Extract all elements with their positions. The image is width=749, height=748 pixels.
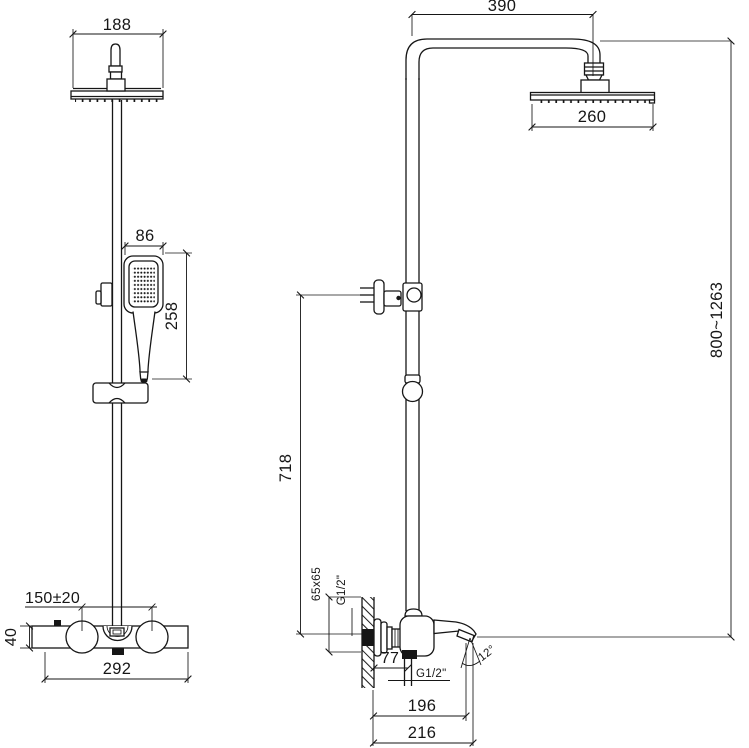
- dim-label-86: 86: [136, 227, 155, 245]
- dim-label-292: 292: [103, 660, 131, 678]
- slider-clamp-front: [93, 383, 148, 403]
- overhead-shower-side: [531, 93, 655, 104]
- slider-knob-side: [403, 375, 423, 402]
- hand-shower-front: [124, 256, 163, 383]
- dim-label-40: 40: [3, 628, 20, 646]
- riser-pole-front: [113, 100, 122, 627]
- riser-pipe-side: [406, 78, 419, 611]
- shower-arm-side: [406, 39, 600, 80]
- dim-label-258: 258: [163, 302, 181, 330]
- dim-label-260: 260: [578, 108, 606, 126]
- dim-mixer-width: 292: [45, 652, 188, 683]
- dim-label-718: 718: [277, 454, 295, 482]
- front-view: 188 86 258 150±20: [3, 16, 192, 683]
- dim-mixer-height: 40: [3, 626, 32, 648]
- dim-label-65x65: 65x65: [309, 567, 323, 601]
- label-g12-inlet: G1/2": [336, 575, 348, 606]
- dim-overhead-diameter: 260: [532, 104, 653, 131]
- dim-handset-width: 86: [125, 227, 163, 255]
- overhead-connector-front: [107, 44, 125, 91]
- technical-drawing-sheet: 188 86 258 150±20: [0, 0, 749, 748]
- mixer-front: [32, 620, 188, 655]
- dim-arm-reach: 390: [412, 0, 593, 76]
- dim-label-150-20: 150±20: [25, 590, 80, 607]
- label-outlet-thread: G1/2": [388, 668, 450, 681]
- dim-label-77: 77: [381, 650, 399, 667]
- dim-height-range: 800~1263: [477, 41, 731, 637]
- dim-label-216: 216: [408, 724, 436, 742]
- label-g12-outlet: G1/2": [416, 668, 447, 680]
- dim-spout-angle: 12°: [461, 638, 498, 668]
- overhead-joint-side: [581, 63, 609, 93]
- dim-label-800-1263: 800~1263: [708, 282, 726, 358]
- dim-label-390: 390: [488, 0, 516, 15]
- dim-label-196: 196: [408, 697, 436, 715]
- label-inlet-thread: G1/2": [336, 575, 352, 636]
- side-view: 390 260 800~1263 718 65x65: [277, 0, 731, 746]
- wall-section: [362, 597, 375, 688]
- handset-bracket-front: [96, 283, 112, 306]
- shower-system-dimension-drawing: 188 86 258 150±20: [0, 0, 749, 748]
- dim-label-188: 188: [103, 16, 131, 34]
- dim-wall-plate: 65x65: [309, 567, 361, 652]
- handset-holder-side: [360, 280, 422, 314]
